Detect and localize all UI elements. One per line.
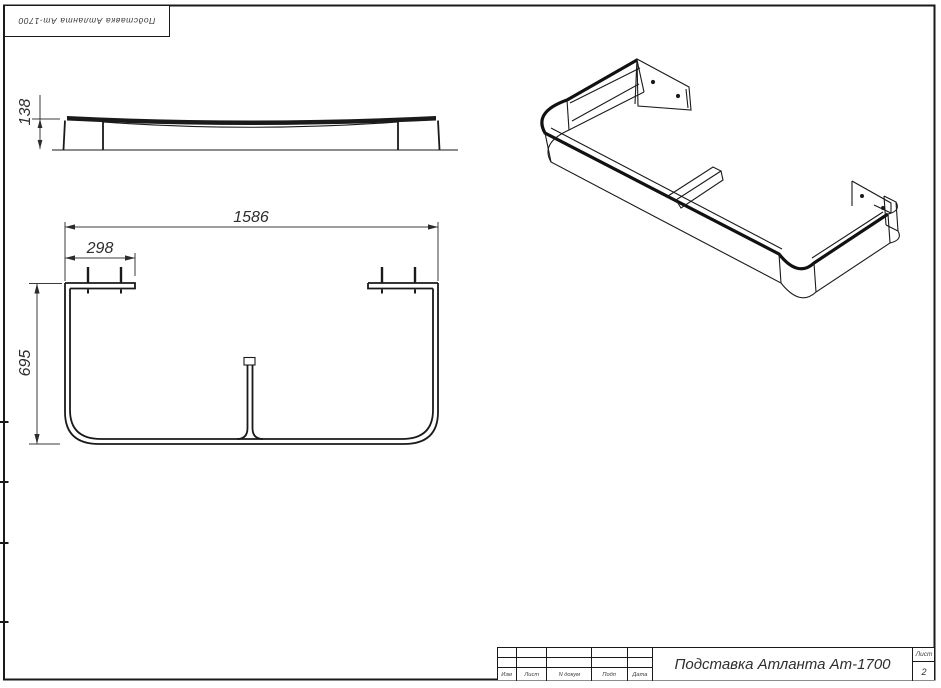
dim-label-1586: 1586 [233, 209, 269, 226]
drawing-sheet: 138 1586 [0, 0, 941, 688]
mounting-hole [676, 94, 680, 98]
column-header-ndokum: N докум [547, 668, 592, 681]
arrowhead [65, 255, 75, 260]
table-cell [628, 658, 653, 668]
top-stamp: Подставка Атланта Ат-1700 [4, 5, 170, 37]
dim-label-138: 138 [17, 99, 34, 126]
mounting-tab-outline [635, 59, 691, 110]
column-header-list: Лист [517, 668, 547, 681]
dim-label-695: 695 [17, 350, 34, 377]
top-stamp-text: Подставка Атланта Ат-1700 [18, 16, 155, 26]
column-header-data: Дата [628, 668, 653, 681]
plan-view: 1586 298 695 [17, 209, 438, 444]
iso-bottom-rim [548, 92, 899, 298]
table-cell [592, 648, 628, 658]
dimension-height-138: 138 [17, 95, 60, 149]
table-cell [517, 648, 547, 658]
dimension-lines [32, 95, 60, 149]
sheet-number: 2 [913, 662, 935, 681]
flange-pins [88, 267, 415, 283]
sheet-number-box: Лист 2 [913, 648, 935, 681]
table-cell [592, 658, 628, 668]
mounting-hole [881, 206, 885, 210]
center-rib-cap [244, 358, 255, 366]
column-header-izm: Изм [498, 668, 517, 681]
arrowhead [125, 255, 135, 260]
mounting-hole [860, 194, 864, 198]
table-cell [517, 658, 547, 668]
mounting-tab-upper [635, 59, 691, 110]
flange-pin-marks [88, 290, 415, 294]
drawing-canvas: 138 1586 [0, 0, 941, 688]
column-header-podp: Подп [592, 668, 628, 681]
mounting-hole [651, 80, 655, 84]
revision-table: Изм Лист N докум Подп Дата [498, 648, 653, 681]
drawing-title: Подставка Атланта Ат-1700 [674, 656, 890, 673]
table-cell [547, 658, 592, 668]
arrowhead [428, 224, 438, 229]
arrowhead [38, 140, 43, 149]
plan-flanges [65, 283, 438, 289]
center-rib [237, 365, 263, 439]
arrowhead [65, 224, 75, 229]
title-block: Изм Лист N докум Подп Дата Подставка Атл… [497, 647, 934, 680]
plan-outer-outline [65, 283, 438, 444]
frame-border [4, 6, 935, 680]
table-cell [498, 648, 517, 658]
dimension-depth-695: 695 [17, 284, 62, 445]
side-view: 138 [17, 95, 458, 150]
plan-inner-outline [70, 289, 433, 440]
dim-label-298: 298 [86, 240, 114, 257]
dimension-flange-298: 298 [65, 240, 135, 276]
arrowhead [38, 119, 43, 128]
sheet-frame [0, 6, 935, 680]
sheet-label: Лист [913, 648, 935, 662]
arrowhead [34, 434, 39, 444]
table-cell [498, 658, 517, 668]
table-cell [547, 648, 592, 658]
isometric-view [542, 59, 900, 298]
iso-corner-seams [545, 60, 898, 292]
arrowhead [34, 284, 39, 294]
drawing-title-cell: Подставка Атланта Ат-1700 [653, 648, 913, 681]
table-cell [628, 648, 653, 658]
